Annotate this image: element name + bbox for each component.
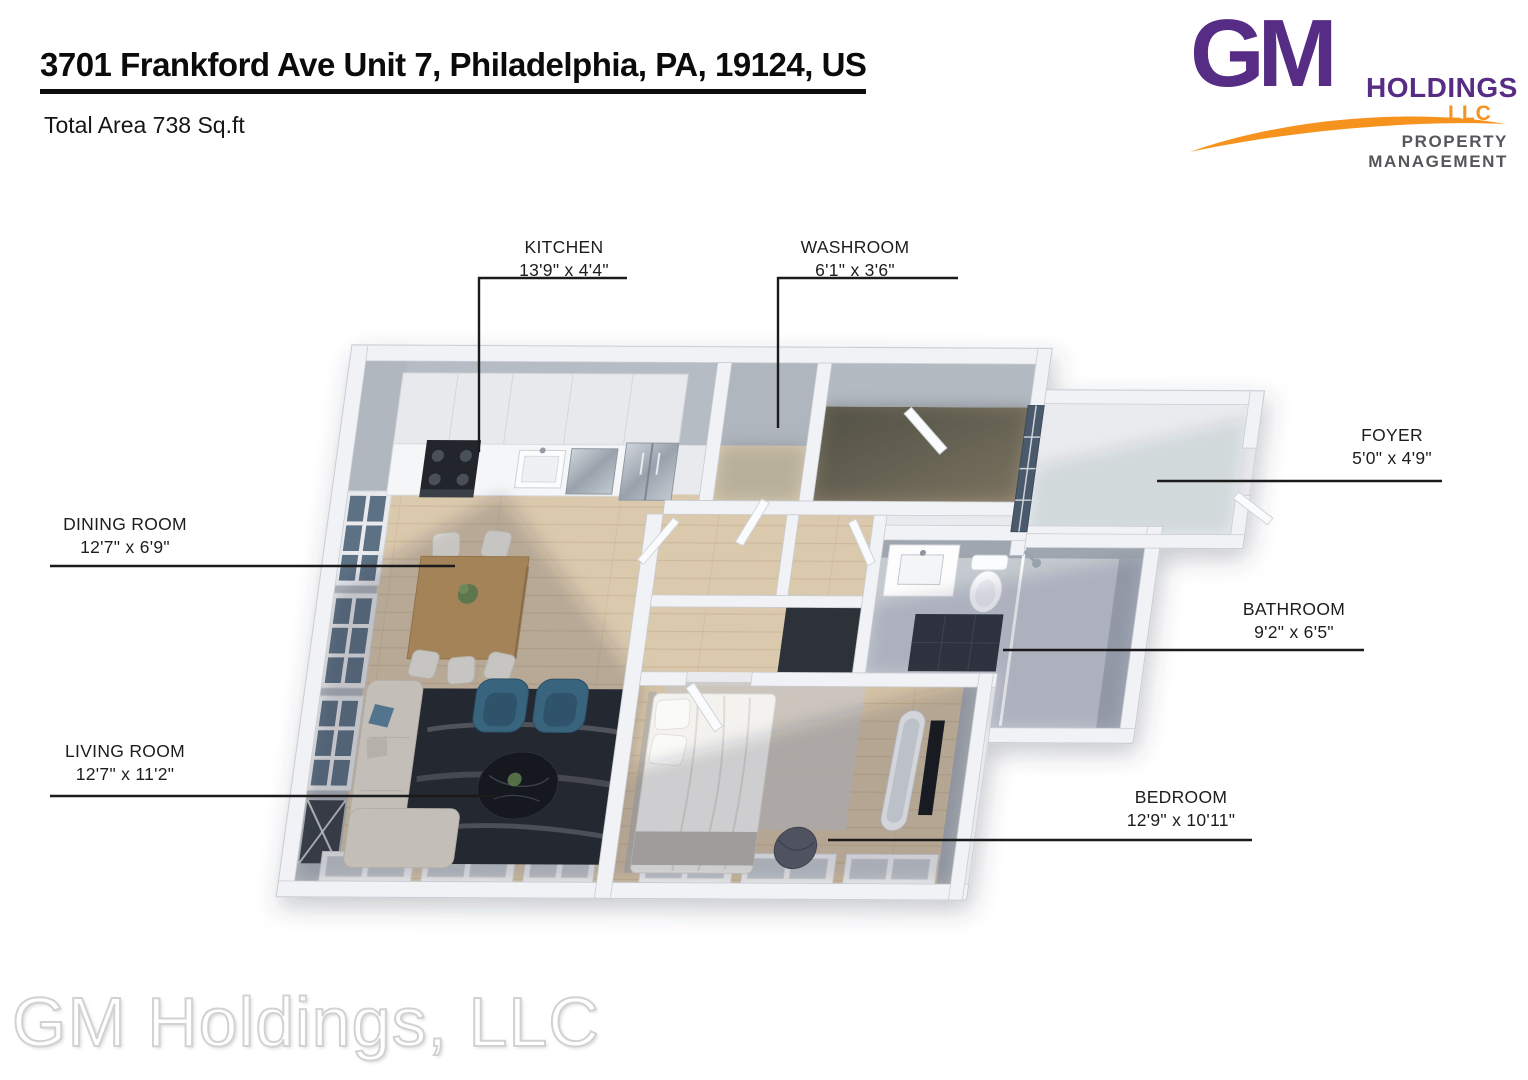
upper-cabinets <box>394 373 689 445</box>
watermark: GM Holdings, LLC <box>12 982 600 1062</box>
bedroom-top-wall <box>640 672 688 686</box>
hall-wall-face <box>826 363 1036 407</box>
bottom-wall <box>276 881 968 900</box>
room-dims: 5'0" x 4'9" <box>1352 447 1432 470</box>
room-label-dining-room: DINING ROOM 12'7" x 6'9" <box>63 513 187 559</box>
room-dims: 13'9" x 4'4" <box>519 259 609 282</box>
room-dims: 6'1" x 3'6" <box>801 259 910 282</box>
room-name: LIVING ROOM <box>65 740 185 763</box>
refrigerator <box>619 443 679 500</box>
room-name: DINING ROOM <box>63 513 187 536</box>
foyer-wall <box>1025 534 1245 549</box>
room-label-bathroom: BATHROOM 9'2" x 6'5" <box>1243 598 1345 644</box>
stove <box>419 440 481 497</box>
room-label-kitchen: KITCHEN 13'9" x 4'4" <box>519 236 609 282</box>
vanity <box>883 545 960 597</box>
washroom-wall-face <box>721 363 818 446</box>
kitchen-sink <box>515 447 567 488</box>
room-name: BEDROOM <box>1127 786 1236 809</box>
closet-wall <box>650 595 876 608</box>
room-dims: 9'2" x 6'5" <box>1243 621 1345 644</box>
top-wall <box>350 345 1052 364</box>
bathroom-wall <box>988 728 1135 744</box>
floor-plan <box>0 0 1528 1080</box>
room-label-washroom: WASHROOM 6'1" x 3'6" <box>801 236 910 282</box>
room-dims: 12'9" x 10'11" <box>1127 809 1236 832</box>
room-name: KITCHEN <box>519 236 609 259</box>
bedroom-top-wall <box>751 672 998 687</box>
dishwasher <box>566 449 618 495</box>
room-label-living-room: LIVING ROOM 12'7" x 11'2" <box>65 740 185 786</box>
room-dims: 12'7" x 6'9" <box>63 536 187 559</box>
room-dims: 12'7" x 11'2" <box>65 763 185 786</box>
foyer-wall <box>1044 390 1264 405</box>
kitchen-area <box>386 373 688 501</box>
hall-bottom-wall <box>663 500 1017 516</box>
room-label-bedroom: BEDROOM 12'9" x 10'11" <box>1127 786 1236 832</box>
room-name: FOYER <box>1352 424 1432 447</box>
room-label-foyer: FOYER 5'0" x 4'9" <box>1352 424 1432 470</box>
closet-dark-floor <box>777 607 861 672</box>
room-name: BATHROOM <box>1243 598 1345 621</box>
room-name: WASHROOM <box>801 236 910 259</box>
